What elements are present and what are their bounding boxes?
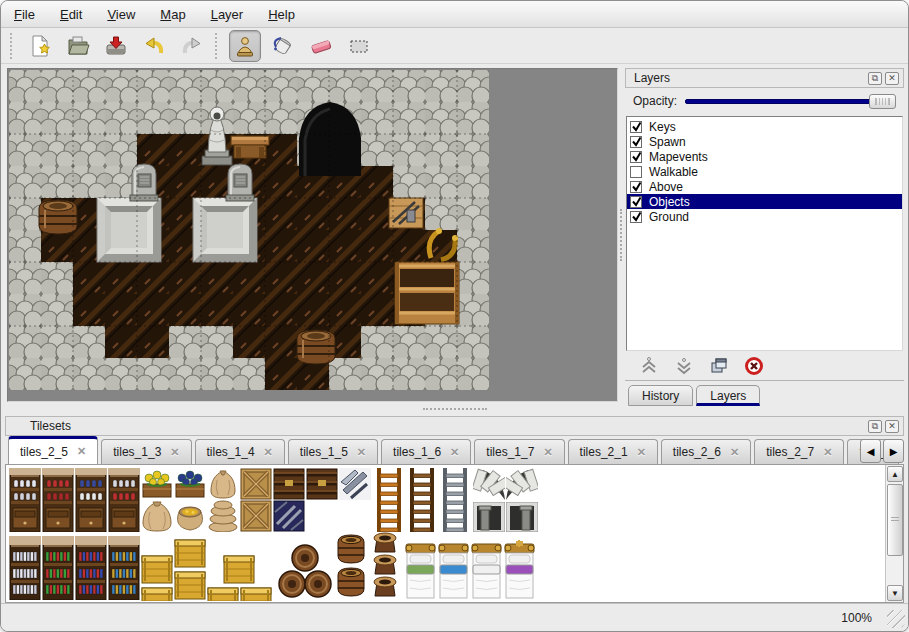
opacity-label: Opacity: — [633, 94, 677, 108]
menu-layer[interactable]: Layer — [211, 7, 244, 22]
map-svg — [9, 70, 489, 392]
layer-row-keys[interactable]: Keys — [627, 119, 902, 134]
tile-ladder[interactable] — [406, 468, 438, 532]
tile-cratedark[interactable] — [306, 468, 338, 500]
eraser-tool-button[interactable] — [305, 30, 337, 62]
save-icon — [104, 34, 128, 58]
tile-cratey[interactable] — [141, 584, 173, 601]
scroll-right-icon[interactable]: ▶ — [883, 439, 904, 463]
layer-name: Keys — [649, 120, 676, 134]
layer-row-ground[interactable]: Ground — [627, 209, 902, 224]
tile-shopshelf[interactable] — [42, 468, 74, 532]
tile-potstack[interactable] — [369, 530, 401, 600]
app-window: FileEditViewMapLayerHelp Layers ⧉ ✕ — [0, 0, 909, 632]
tile-arch[interactable] — [473, 468, 505, 500]
menu-edit[interactable]: Edit — [60, 7, 82, 22]
layer-row-above[interactable]: Above — [627, 179, 902, 194]
layer-checkbox[interactable] — [630, 181, 642, 193]
tile-bookshelf[interactable] — [9, 536, 41, 600]
close-icon[interactable]: ✕ — [885, 72, 899, 85]
opacity-slider-track[interactable] — [685, 99, 894, 104]
close-tab-icon[interactable]: ✕ — [77, 445, 86, 458]
layers-dock: Layers ⧉ ✕ Opacity: Keys Spawn Mapevents… — [625, 65, 904, 406]
tile-barrel[interactable] — [336, 532, 366, 564]
move-up-icon[interactable] — [639, 356, 659, 376]
tile-sackbig[interactable] — [141, 500, 173, 532]
layer-row-objects[interactable]: Objects — [627, 194, 902, 209]
tile-arch[interactable] — [506, 468, 538, 500]
layer-name: Above — [649, 180, 683, 194]
tile-cratey[interactable] — [174, 536, 206, 568]
tileset-tiles[interactable] — [7, 466, 884, 601]
tile-shopshelf[interactable] — [9, 468, 41, 532]
close-tab-icon[interactable]: ✕ — [543, 446, 552, 459]
status-bar: 100% — [1, 603, 908, 631]
delete-icon[interactable] — [744, 356, 764, 376]
close-tab-icon[interactable]: ✕ — [730, 446, 739, 459]
new-file-icon — [28, 34, 52, 58]
horizontal-splitter[interactable] — [1, 405, 908, 413]
tile-flower[interactable] — [141, 468, 173, 500]
redo-button[interactable] — [176, 30, 208, 62]
menu-view[interactable]: View — [107, 7, 135, 22]
opacity-slider[interactable] — [685, 93, 896, 109]
tile-barrel[interactable] — [336, 565, 366, 597]
save-button[interactable] — [100, 30, 132, 62]
scrollbar-thumb[interactable] — [887, 484, 903, 556]
tileset-tab-tiles_2_7[interactable]: tiles_2_7✕ — [754, 439, 844, 464]
undo-icon — [142, 34, 166, 58]
float-icon[interactable]: ⧉ — [868, 420, 882, 433]
layer-checkbox[interactable] — [630, 136, 642, 148]
layer-row-walkable[interactable]: Walkable — [627, 164, 902, 179]
close-tab-icon[interactable]: ✕ — [170, 446, 179, 459]
tileset-tab-tiles_1_5[interactable]: tiles_1_5✕ — [288, 439, 378, 464]
undo-button[interactable] — [138, 30, 170, 62]
eraser-tool-icon — [309, 34, 333, 58]
close-tab-icon[interactable]: ✕ — [450, 446, 459, 459]
tile-bookshelf[interactable] — [108, 536, 140, 600]
layer-row-spawn[interactable]: Spawn — [627, 134, 902, 149]
layer-name: Ground — [649, 210, 689, 224]
tile-sack[interactable] — [207, 468, 239, 500]
tile-cratey[interactable] — [207, 584, 239, 601]
map-canvas[interactable] — [7, 68, 618, 402]
close-tab-icon[interactable]: ✕ — [264, 446, 273, 459]
tile-cratey[interactable] — [240, 584, 272, 601]
tile-bed[interactable] — [405, 536, 436, 600]
layer-checkbox[interactable] — [630, 151, 642, 163]
close-icon[interactable]: ✕ — [885, 420, 899, 433]
stamp-tool-button[interactable] — [229, 30, 261, 62]
duplicate-icon[interactable] — [709, 356, 729, 376]
resize-grip[interactable] — [887, 610, 905, 628]
fill-tool-icon — [271, 34, 295, 58]
layer-row-mapevents[interactable]: Mapevents — [627, 149, 902, 164]
menu-bar: FileEditViewMapLayerHelp — [1, 1, 908, 28]
close-tab-icon[interactable]: ✕ — [637, 446, 646, 459]
layer-list: Keys Spawn Mapevents Walkable Above Obje… — [626, 116, 903, 351]
tile-cratenavy[interactable] — [273, 500, 305, 532]
tileset-view: ▲ ▼ — [5, 464, 904, 603]
opacity-row: Opacity: — [625, 88, 904, 114]
tab-history[interactable]: History — [628, 385, 693, 406]
close-tab-icon[interactable]: ✕ — [357, 446, 366, 459]
zoom-level: 100% — [841, 611, 872, 625]
menu-file[interactable]: File — [14, 7, 35, 22]
toolbar — [1, 28, 908, 64]
tileset-tab-tiles_1_7[interactable]: tiles_1_7✕ — [474, 439, 564, 464]
tile-cratey[interactable] — [174, 568, 206, 600]
tile-cratey[interactable] — [223, 552, 255, 584]
scroll-down-icon[interactable]: ▼ — [887, 585, 903, 601]
menu-map[interactable]: Map — [160, 7, 185, 22]
move-down-icon[interactable] — [674, 356, 694, 376]
redo-icon — [180, 34, 204, 58]
layer-actions — [625, 351, 904, 381]
new-file-button[interactable] — [24, 30, 56, 62]
tile-shopshelf[interactable] — [108, 468, 140, 532]
layer-name: Spawn — [649, 135, 686, 149]
tile-stonedoor[interactable] — [506, 502, 538, 532]
tile-bookshelf[interactable] — [75, 536, 107, 600]
tilesets-panel-titlebar: Tilesets ⧉ ✕ — [5, 416, 904, 436]
opacity-slider-handle[interactable] — [869, 94, 896, 109]
layer-checkbox[interactable] — [630, 211, 642, 223]
tile-cratex[interactable] — [240, 500, 272, 532]
toolbar-grip[interactable] — [215, 33, 218, 59]
tile-bed[interactable] — [471, 536, 502, 600]
open-folder-button[interactable] — [62, 30, 94, 62]
tile-ladder[interactable] — [439, 468, 471, 532]
layer-name: Mapevents — [649, 150, 708, 164]
tile-bed[interactable] — [504, 536, 535, 600]
menu-help[interactable]: Help — [268, 7, 295, 22]
tileset-scrollbar[interactable]: ▲ ▼ — [885, 465, 903, 602]
open-folder-icon — [66, 34, 90, 58]
select-tool-icon — [347, 34, 371, 58]
tab-layers[interactable]: Layers — [696, 385, 760, 406]
tile-bed[interactable] — [438, 536, 469, 600]
layer-checkbox[interactable] — [630, 166, 642, 178]
select-tool-button[interactable] — [343, 30, 375, 62]
tile-sackopen[interactable] — [174, 500, 206, 532]
tile-stonedoor[interactable] — [473, 502, 505, 532]
tile-cratey[interactable] — [141, 552, 173, 584]
dock-tabs: HistoryLayers — [625, 381, 904, 406]
layer-name: Objects — [649, 195, 690, 209]
tile-cratex[interactable] — [240, 468, 272, 500]
tile-bookshelf[interactable] — [42, 536, 74, 600]
toolbar-grip[interactable] — [10, 33, 13, 59]
float-icon[interactable]: ⧉ — [868, 72, 882, 85]
layer-name: Walkable — [649, 165, 698, 179]
tileset-tab-tiles_1_4[interactable]: tiles_1_4✕ — [195, 439, 285, 464]
close-tab-icon[interactable]: ✕ — [823, 446, 832, 459]
layers-panel-title: Layers — [634, 71, 670, 85]
tileset-tab-tiles_2_1[interactable]: tiles_2_1✕ — [568, 439, 658, 464]
tile-flower[interactable] — [174, 468, 206, 500]
scroll-up-icon[interactable]: ▲ — [887, 466, 903, 482]
tile-shopshelf[interactable] — [75, 468, 107, 532]
tile-ladder[interactable] — [373, 468, 405, 532]
tile-metal[interactable] — [339, 468, 371, 500]
tileset-tab-bar: tiles_2_5✕tiles_1_3✕tiles_1_4✕tiles_1_5✕… — [5, 436, 904, 464]
tileset-tab-tiles_1_3[interactable]: tiles_1_3✕ — [101, 439, 191, 464]
tilesets-dock: Tilesets ⧉ ✕ tiles_2_5✕tiles_1_3✕tiles_1… — [5, 413, 904, 603]
layers-panel-titlebar: Layers ⧉ ✕ — [625, 68, 904, 88]
tileset-tab-tiles_1_6[interactable]: tiles_1_6✕ — [381, 439, 471, 464]
tileset-tab-tiles_2_6[interactable]: tiles_2_6✕ — [661, 439, 751, 464]
tilesets-panel-title: Tilesets — [30, 419, 71, 433]
layer-checkbox[interactable] — [630, 196, 642, 208]
fill-tool-button[interactable] — [267, 30, 299, 62]
tile-barrelpile[interactable] — [277, 542, 333, 600]
tileset-tab-tiles_2_5[interactable]: tiles_2_5✕ — [8, 436, 98, 464]
layer-checkbox[interactable] — [630, 121, 642, 133]
vertical-splitter[interactable] — [618, 68, 625, 402]
tile-sackpile[interactable] — [207, 500, 239, 532]
tile-cratedark[interactable] — [273, 468, 305, 500]
stamp-tool-icon — [233, 34, 257, 58]
main-area: Layers ⧉ ✕ Opacity: Keys Spawn Mapevents… — [1, 65, 908, 406]
scroll-left-icon[interactable]: ◀ — [860, 439, 881, 463]
